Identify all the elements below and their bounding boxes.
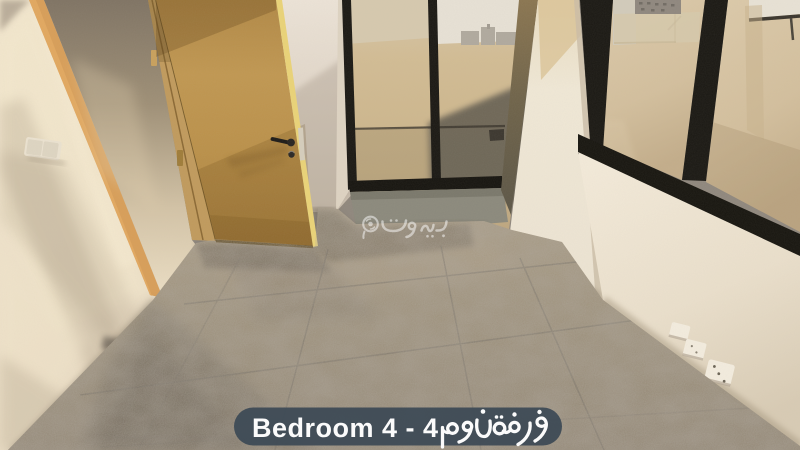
svg-text:Bedroom 4 - 4: Bedroom 4 - 4	[252, 413, 438, 443]
